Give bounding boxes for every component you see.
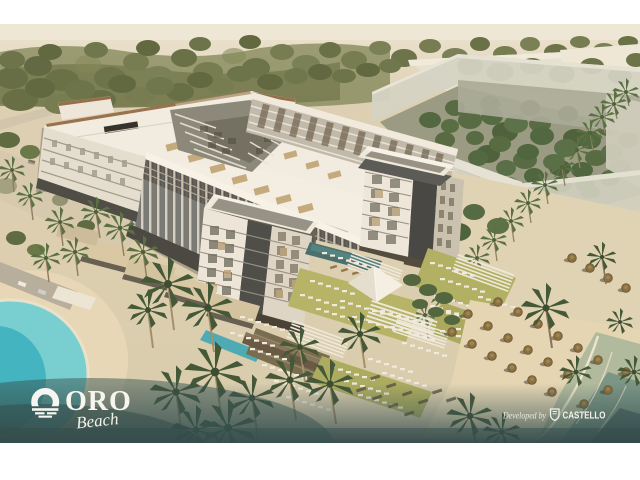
- svg-text:Developed by: Developed by: [502, 412, 546, 422]
- svg-text:CASTELLO: CASTELLO: [563, 411, 606, 422]
